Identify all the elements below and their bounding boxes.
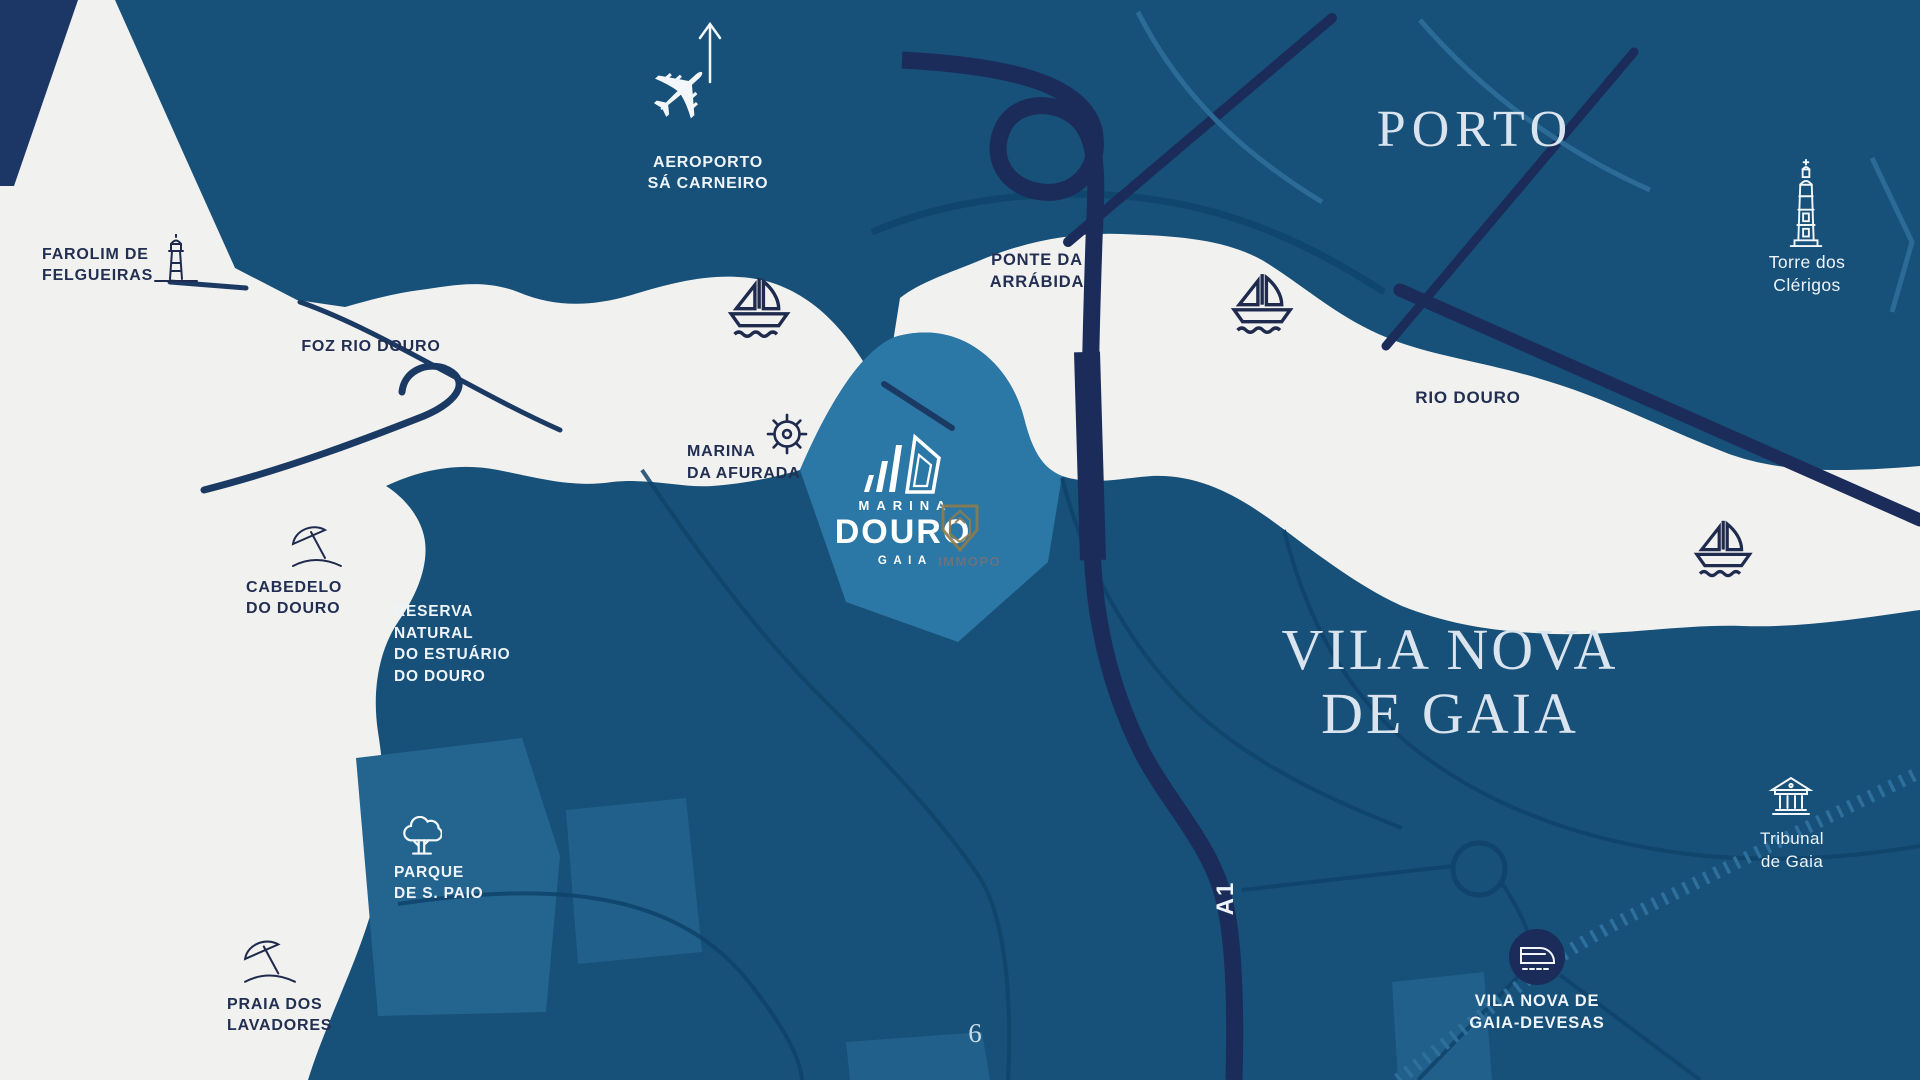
beach-umbrella-icon: [290, 522, 344, 570]
ship-wheel-icon: [766, 413, 808, 455]
marina-douro-logo-icon: [858, 424, 948, 496]
green-zone: [566, 798, 702, 964]
parque-s-paio-label: PARQUE DE S. PAIO: [394, 862, 524, 904]
beach-umbrella-icon: [242, 936, 298, 986]
reserva-label: RESERVA NATURAL DO ESTUÁRIO DO DOURO: [394, 601, 534, 687]
gaia-region-title: VILA NOVA DE GAIA: [1260, 618, 1640, 746]
praia-lavadores-label: PRAIA DOS LAVADORES: [227, 994, 367, 1036]
ponte-arrabida-label: PONTE DA ARRÁBIDA: [952, 249, 1122, 293]
tribunal-label: Tribunal de Gaia: [1726, 827, 1858, 873]
foz-rio-douro-label: FOZ RIO DOURO: [296, 336, 446, 357]
map-canvas: PORTO VILA NOVA DE GAIA FOZ RIO DOURO RI…: [0, 0, 1920, 1080]
page-number: 6: [950, 1018, 1000, 1049]
immopo-shield-icon: [940, 504, 982, 554]
devesas-label: VILA NOVA DE GAIA-DEVESAS: [1442, 990, 1632, 1034]
porto-region-title: PORTO: [1345, 100, 1605, 159]
arrabida-bridge: [1087, 352, 1093, 560]
aeroporto-label: AEROPORTO SÁ CARNEIRO: [618, 152, 798, 194]
north-arrow-icon: [692, 16, 728, 86]
clerigos-tower-icon: [1788, 156, 1824, 248]
torre-clerigos-label: Torre dos Clérigos: [1732, 251, 1882, 297]
lighthouse-icon: [152, 234, 200, 284]
immopo-wordmark: IMMOPO: [938, 554, 1001, 569]
cabedelo-label: CABEDELO DO DOURO: [246, 577, 386, 619]
train-icon: [1509, 929, 1565, 985]
courthouse-icon: [1768, 774, 1814, 822]
a1-road-label: A1: [1212, 868, 1240, 928]
tree-icon: [402, 816, 442, 858]
rio-douro-label: RIO DOURO: [1398, 387, 1538, 408]
